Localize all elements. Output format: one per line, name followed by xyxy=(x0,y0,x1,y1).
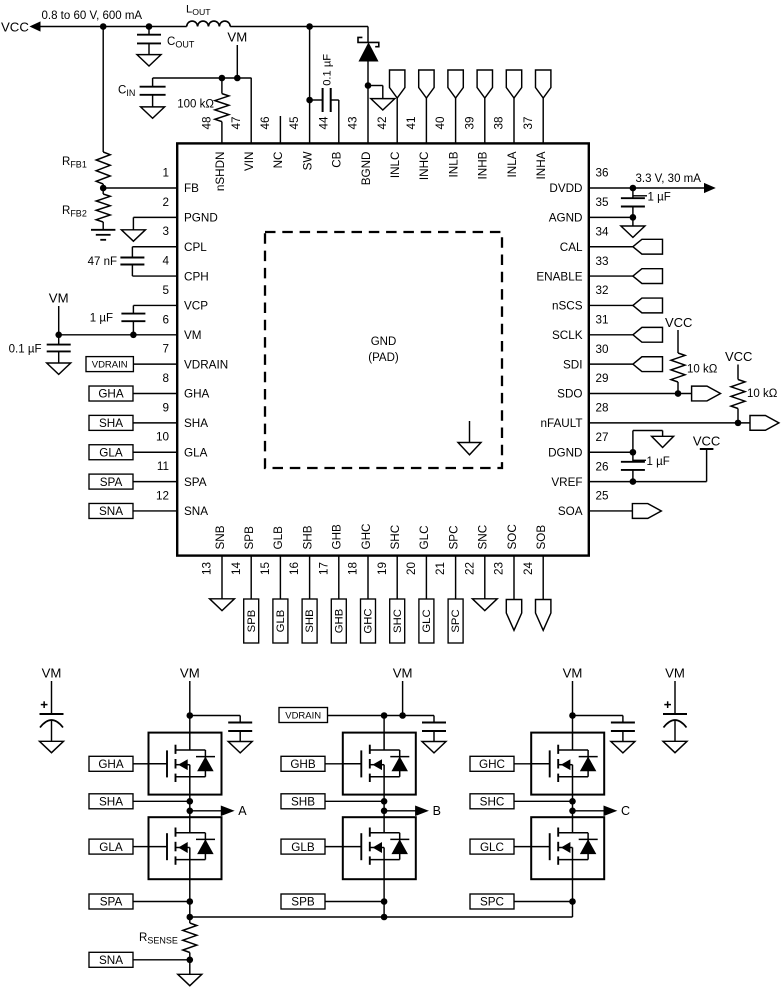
svg-text:CPL: CPL xyxy=(184,241,207,254)
svg-text:44: 44 xyxy=(317,116,330,130)
svg-text:SPA: SPA xyxy=(100,476,123,489)
svg-text:SNB: SNB xyxy=(214,525,227,549)
svg-text:VIN: VIN xyxy=(243,152,256,171)
svg-text:37: 37 xyxy=(522,116,535,129)
svg-text:PGND: PGND xyxy=(184,212,218,225)
svg-text:19: 19 xyxy=(376,562,389,575)
svg-text:GLA: GLA xyxy=(99,841,123,854)
svg-text:35: 35 xyxy=(596,196,610,209)
svg-text:SPB: SPB xyxy=(291,896,315,909)
svg-text:32: 32 xyxy=(596,284,609,297)
svg-text:VM: VM xyxy=(49,291,69,306)
svg-text:48: 48 xyxy=(201,116,214,129)
svg-text:100 kΩ: 100 kΩ xyxy=(177,99,214,111)
svg-text:2: 2 xyxy=(162,196,169,209)
svg-text:VM: VM xyxy=(227,30,247,45)
svg-text:GLB: GLB xyxy=(275,610,287,633)
svg-text:46: 46 xyxy=(259,116,272,129)
svg-text:ENABLE: ENABLE xyxy=(536,270,582,283)
svg-text:41: 41 xyxy=(405,116,418,129)
svg-text:17: 17 xyxy=(317,562,330,575)
svg-text:28: 28 xyxy=(596,402,609,415)
svg-text:SOA: SOA xyxy=(558,505,583,518)
svg-text:CAL: CAL xyxy=(560,241,583,254)
svg-text:SHC: SHC xyxy=(389,525,402,550)
svg-text:10 kΩ: 10 kΩ xyxy=(687,364,718,376)
svg-text:18: 18 xyxy=(347,562,360,575)
svg-text:15: 15 xyxy=(259,562,272,576)
svg-text:47: 47 xyxy=(230,116,243,129)
svg-text:SPB: SPB xyxy=(243,526,256,550)
svg-text:SPA: SPA xyxy=(100,896,123,909)
svg-text:3.3 V, 30 mA: 3.3 V, 30 mA xyxy=(636,173,702,185)
svg-text:CB: CB xyxy=(331,151,344,167)
svg-text:26: 26 xyxy=(596,460,609,473)
svg-text:SPC: SPC xyxy=(447,525,460,549)
svg-text:4: 4 xyxy=(162,255,169,268)
svg-text:INHA: INHA xyxy=(535,151,548,179)
svg-text:16: 16 xyxy=(288,562,301,575)
svg-text:7: 7 xyxy=(162,343,169,356)
svg-text:9: 9 xyxy=(162,401,169,414)
svg-text:29: 29 xyxy=(596,372,609,385)
svg-text:VM: VM xyxy=(393,666,413,681)
svg-text:nSHDN: nSHDN xyxy=(214,151,227,191)
svg-text:SHB: SHB xyxy=(301,525,314,549)
svg-text:GHB: GHB xyxy=(331,524,344,550)
svg-text:GHB: GHB xyxy=(290,758,316,771)
svg-text:A: A xyxy=(238,804,247,818)
svg-text:3: 3 xyxy=(162,225,169,238)
svg-text:GHA: GHA xyxy=(98,388,124,401)
svg-text:SDO: SDO xyxy=(557,388,582,401)
svg-text:1 µF: 1 µF xyxy=(90,312,113,324)
svg-text:VM: VM xyxy=(184,329,202,342)
svg-text:BGND: BGND xyxy=(360,152,373,186)
svg-text:30: 30 xyxy=(596,343,610,356)
svg-text:SNC: SNC xyxy=(477,525,490,550)
svg-text:34: 34 xyxy=(596,225,610,238)
svg-text:GLB: GLB xyxy=(272,526,285,550)
svg-text:SHC: SHC xyxy=(480,796,505,809)
svg-text:SPB: SPB xyxy=(246,610,258,633)
svg-text:10 kΩ: 10 kΩ xyxy=(747,388,778,400)
svg-text:(PAD): (PAD) xyxy=(368,352,399,364)
svg-text:1 µF: 1 µF xyxy=(647,456,670,468)
svg-text:VM: VM xyxy=(180,666,200,681)
svg-text:CPH: CPH xyxy=(184,270,209,283)
svg-text:31: 31 xyxy=(596,314,609,327)
svg-text:GHA: GHA xyxy=(98,758,124,771)
svg-text:SOC: SOC xyxy=(506,524,519,549)
svg-text:VCC: VCC xyxy=(725,349,752,364)
svg-text:SNA: SNA xyxy=(99,954,123,967)
svg-text:FB: FB xyxy=(184,182,199,195)
svg-text:DVDD: DVDD xyxy=(549,182,582,195)
svg-text:GLB: GLB xyxy=(291,841,315,854)
svg-text:VM: VM xyxy=(42,666,62,681)
svg-text:GND: GND xyxy=(371,336,397,348)
svg-text:10: 10 xyxy=(156,431,170,444)
svg-text:GLC: GLC xyxy=(480,841,504,854)
svg-text:VDRAIN: VDRAIN xyxy=(92,360,128,371)
svg-text:20: 20 xyxy=(405,562,418,576)
svg-text:6: 6 xyxy=(162,313,169,326)
svg-text:27: 27 xyxy=(596,431,609,444)
svg-text:SPC: SPC xyxy=(480,896,504,909)
svg-text:GHC: GHC xyxy=(363,608,375,633)
svg-text:INHC: INHC xyxy=(418,152,431,181)
svg-text:SHC: SHC xyxy=(392,609,404,633)
svg-text:43: 43 xyxy=(347,116,360,129)
svg-text:GLA: GLA xyxy=(184,446,208,459)
svg-text:39: 39 xyxy=(463,116,476,129)
svg-text:11: 11 xyxy=(157,460,169,473)
svg-text:INHB: INHB xyxy=(477,151,490,179)
svg-text:VDRAIN: VDRAIN xyxy=(285,711,321,722)
svg-text:DGND: DGND xyxy=(548,446,582,459)
svg-text:0.1 µF: 0.1 µF xyxy=(9,344,42,356)
svg-text:VDRAIN: VDRAIN xyxy=(184,358,228,371)
svg-text:24: 24 xyxy=(522,562,535,576)
svg-text:13: 13 xyxy=(201,562,214,575)
svg-text:SHA: SHA xyxy=(184,417,208,430)
svg-text:SHA: SHA xyxy=(99,796,123,809)
svg-text:12: 12 xyxy=(156,489,169,502)
svg-text:INLA: INLA xyxy=(506,151,519,177)
svg-text:SHB: SHB xyxy=(291,796,315,809)
svg-text:nSCS: nSCS xyxy=(552,300,583,313)
svg-text:SOB: SOB xyxy=(535,525,548,550)
svg-text:GHA: GHA xyxy=(184,388,210,401)
svg-text:SHB: SHB xyxy=(304,609,316,632)
svg-text:GHC: GHC xyxy=(360,524,373,550)
svg-text:SNA: SNA xyxy=(184,505,208,518)
svg-text:33: 33 xyxy=(596,255,609,268)
svg-text:AGND: AGND xyxy=(549,212,583,225)
svg-text:SCLK: SCLK xyxy=(552,329,583,342)
svg-text:GHB: GHB xyxy=(333,609,345,633)
svg-text:14: 14 xyxy=(230,562,243,576)
svg-text:GLA: GLA xyxy=(99,446,123,459)
svg-text:INLC: INLC xyxy=(389,152,402,179)
svg-text:8: 8 xyxy=(162,372,169,385)
svg-text:SPA: SPA xyxy=(184,476,207,489)
svg-text:0.8 to 60 V, 600 mA: 0.8 to 60 V, 600 mA xyxy=(42,10,143,22)
svg-text:C: C xyxy=(621,804,630,818)
svg-text:1 µF: 1 µF xyxy=(648,191,671,203)
svg-text:SHA: SHA xyxy=(99,417,123,430)
svg-text:nFAULT: nFAULT xyxy=(540,417,582,430)
svg-text:40: 40 xyxy=(434,116,447,130)
svg-text:INLB: INLB xyxy=(447,151,460,177)
svg-text:VM: VM xyxy=(665,666,685,681)
svg-text:1: 1 xyxy=(162,167,169,180)
svg-text:25: 25 xyxy=(596,490,610,503)
svg-text:B: B xyxy=(433,804,441,818)
svg-text:VREF: VREF xyxy=(551,476,582,489)
svg-text:21: 21 xyxy=(434,562,447,575)
svg-text:38: 38 xyxy=(493,116,506,129)
svg-text:NC: NC xyxy=(272,152,285,169)
svg-text:23: 23 xyxy=(493,562,506,575)
svg-text:VM: VM xyxy=(563,666,583,681)
svg-text:0.1 µF: 0.1 µF xyxy=(321,54,333,86)
svg-text:VCC: VCC xyxy=(693,434,720,449)
svg-text:VCC: VCC xyxy=(665,315,692,330)
svg-text:VCC: VCC xyxy=(1,19,29,34)
svg-text:5: 5 xyxy=(162,284,169,297)
svg-text:GLC: GLC xyxy=(418,525,431,549)
svg-text:SNA: SNA xyxy=(99,505,123,518)
svg-text:22: 22 xyxy=(463,562,476,575)
svg-text:GHC: GHC xyxy=(479,758,505,771)
svg-text:SPC: SPC xyxy=(450,609,462,632)
svg-text:45: 45 xyxy=(288,116,301,130)
svg-text:SW: SW xyxy=(301,152,314,171)
svg-text:VCP: VCP xyxy=(184,300,208,313)
svg-text:SDI: SDI xyxy=(563,358,582,371)
svg-text:47 nF: 47 nF xyxy=(88,256,117,268)
svg-text:42: 42 xyxy=(376,116,389,129)
svg-text:GLC: GLC xyxy=(421,609,433,632)
svg-text:36: 36 xyxy=(596,167,609,180)
